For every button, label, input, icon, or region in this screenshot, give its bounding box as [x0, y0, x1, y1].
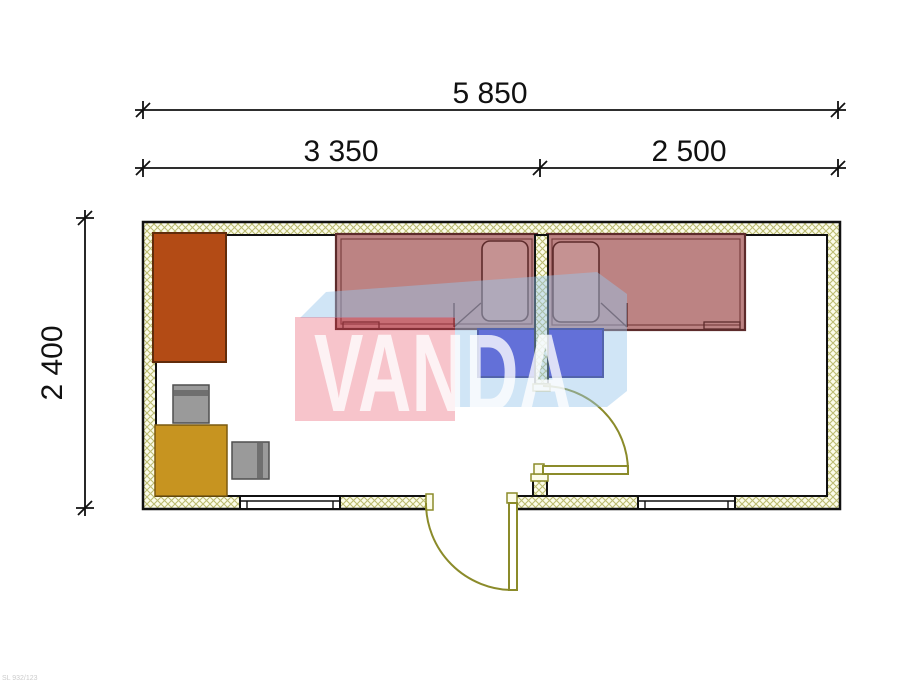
exterior-door	[426, 492, 517, 590]
door-swing-arc	[426, 503, 513, 590]
dim-label-depth: 2 400	[36, 325, 69, 400]
interior-door-leaf	[543, 466, 628, 474]
dimension-room-widths: 3 350 2 500	[135, 135, 846, 177]
watermark-text: VANDA	[314, 312, 572, 435]
chair-1-backrest	[174, 390, 208, 396]
dimension-overall-width: 5 850	[135, 77, 846, 119]
dimension-depth: 2 400	[36, 210, 94, 516]
floor-plan-drawing: 5 850 3 350 2 500 2 400 VANDA SL 932/123	[0, 0, 924, 700]
stub-end-cap	[531, 474, 548, 481]
door-leaf	[509, 503, 517, 590]
dim-label-right-room: 2 500	[651, 135, 726, 168]
dim-label-left-room: 3 350	[303, 135, 378, 168]
door-hinge-block	[507, 493, 517, 503]
door-opening	[431, 492, 511, 512]
drawing-code: SL 932/123	[2, 675, 38, 682]
chair-2	[232, 442, 269, 479]
dim-label-overall: 5 850	[452, 77, 527, 110]
chair-1	[173, 385, 209, 423]
window-2	[638, 496, 735, 509]
cabinet	[155, 425, 227, 496]
window-1	[240, 496, 340, 509]
floor-plan-canvas: 5 850 3 350 2 500 2 400 VANDA SL 932/123	[0, 0, 924, 700]
wall-stub	[531, 474, 548, 496]
wardrobe	[153, 233, 226, 362]
chair-2-backrest	[257, 443, 263, 478]
